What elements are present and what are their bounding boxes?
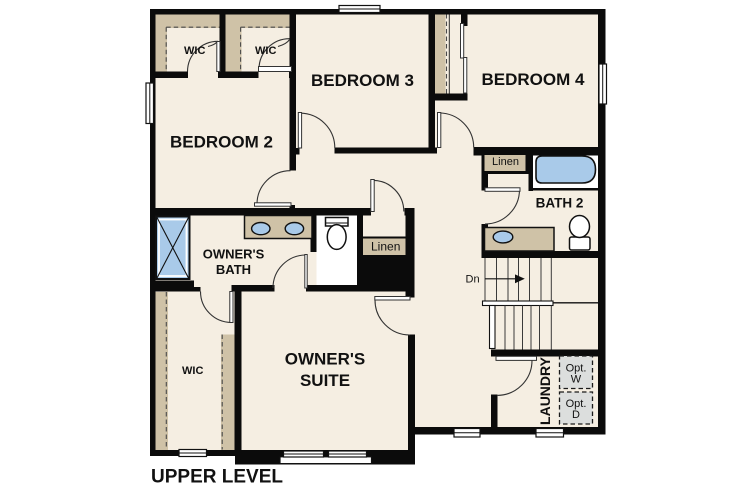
svg-text:D: D xyxy=(572,409,580,421)
svg-text:W: W xyxy=(571,374,582,386)
svg-text:WIC: WIC xyxy=(182,365,203,377)
svg-text:BEDROOM 2: BEDROOM 2 xyxy=(170,133,273,152)
svg-text:OWNER'S: OWNER'S xyxy=(285,350,366,369)
svg-text:WIC: WIC xyxy=(255,45,276,57)
svg-text:SUITE: SUITE xyxy=(300,371,350,390)
svg-text:Linen: Linen xyxy=(492,156,519,168)
svg-text:BATH: BATH xyxy=(216,262,251,277)
svg-text:Dn: Dn xyxy=(466,274,480,286)
svg-text:OWNER'S: OWNER'S xyxy=(203,247,265,262)
svg-text:BEDROOM 3: BEDROOM 3 xyxy=(311,71,414,90)
svg-text:BATH 2: BATH 2 xyxy=(536,196,584,211)
svg-text:UPPER LEVEL: UPPER LEVEL xyxy=(151,467,283,488)
svg-text:LAUNDRY: LAUNDRY xyxy=(537,356,553,425)
svg-text:Linen: Linen xyxy=(371,240,400,254)
svg-text:BEDROOM 4: BEDROOM 4 xyxy=(482,70,586,89)
svg-text:WIC: WIC xyxy=(184,45,205,57)
